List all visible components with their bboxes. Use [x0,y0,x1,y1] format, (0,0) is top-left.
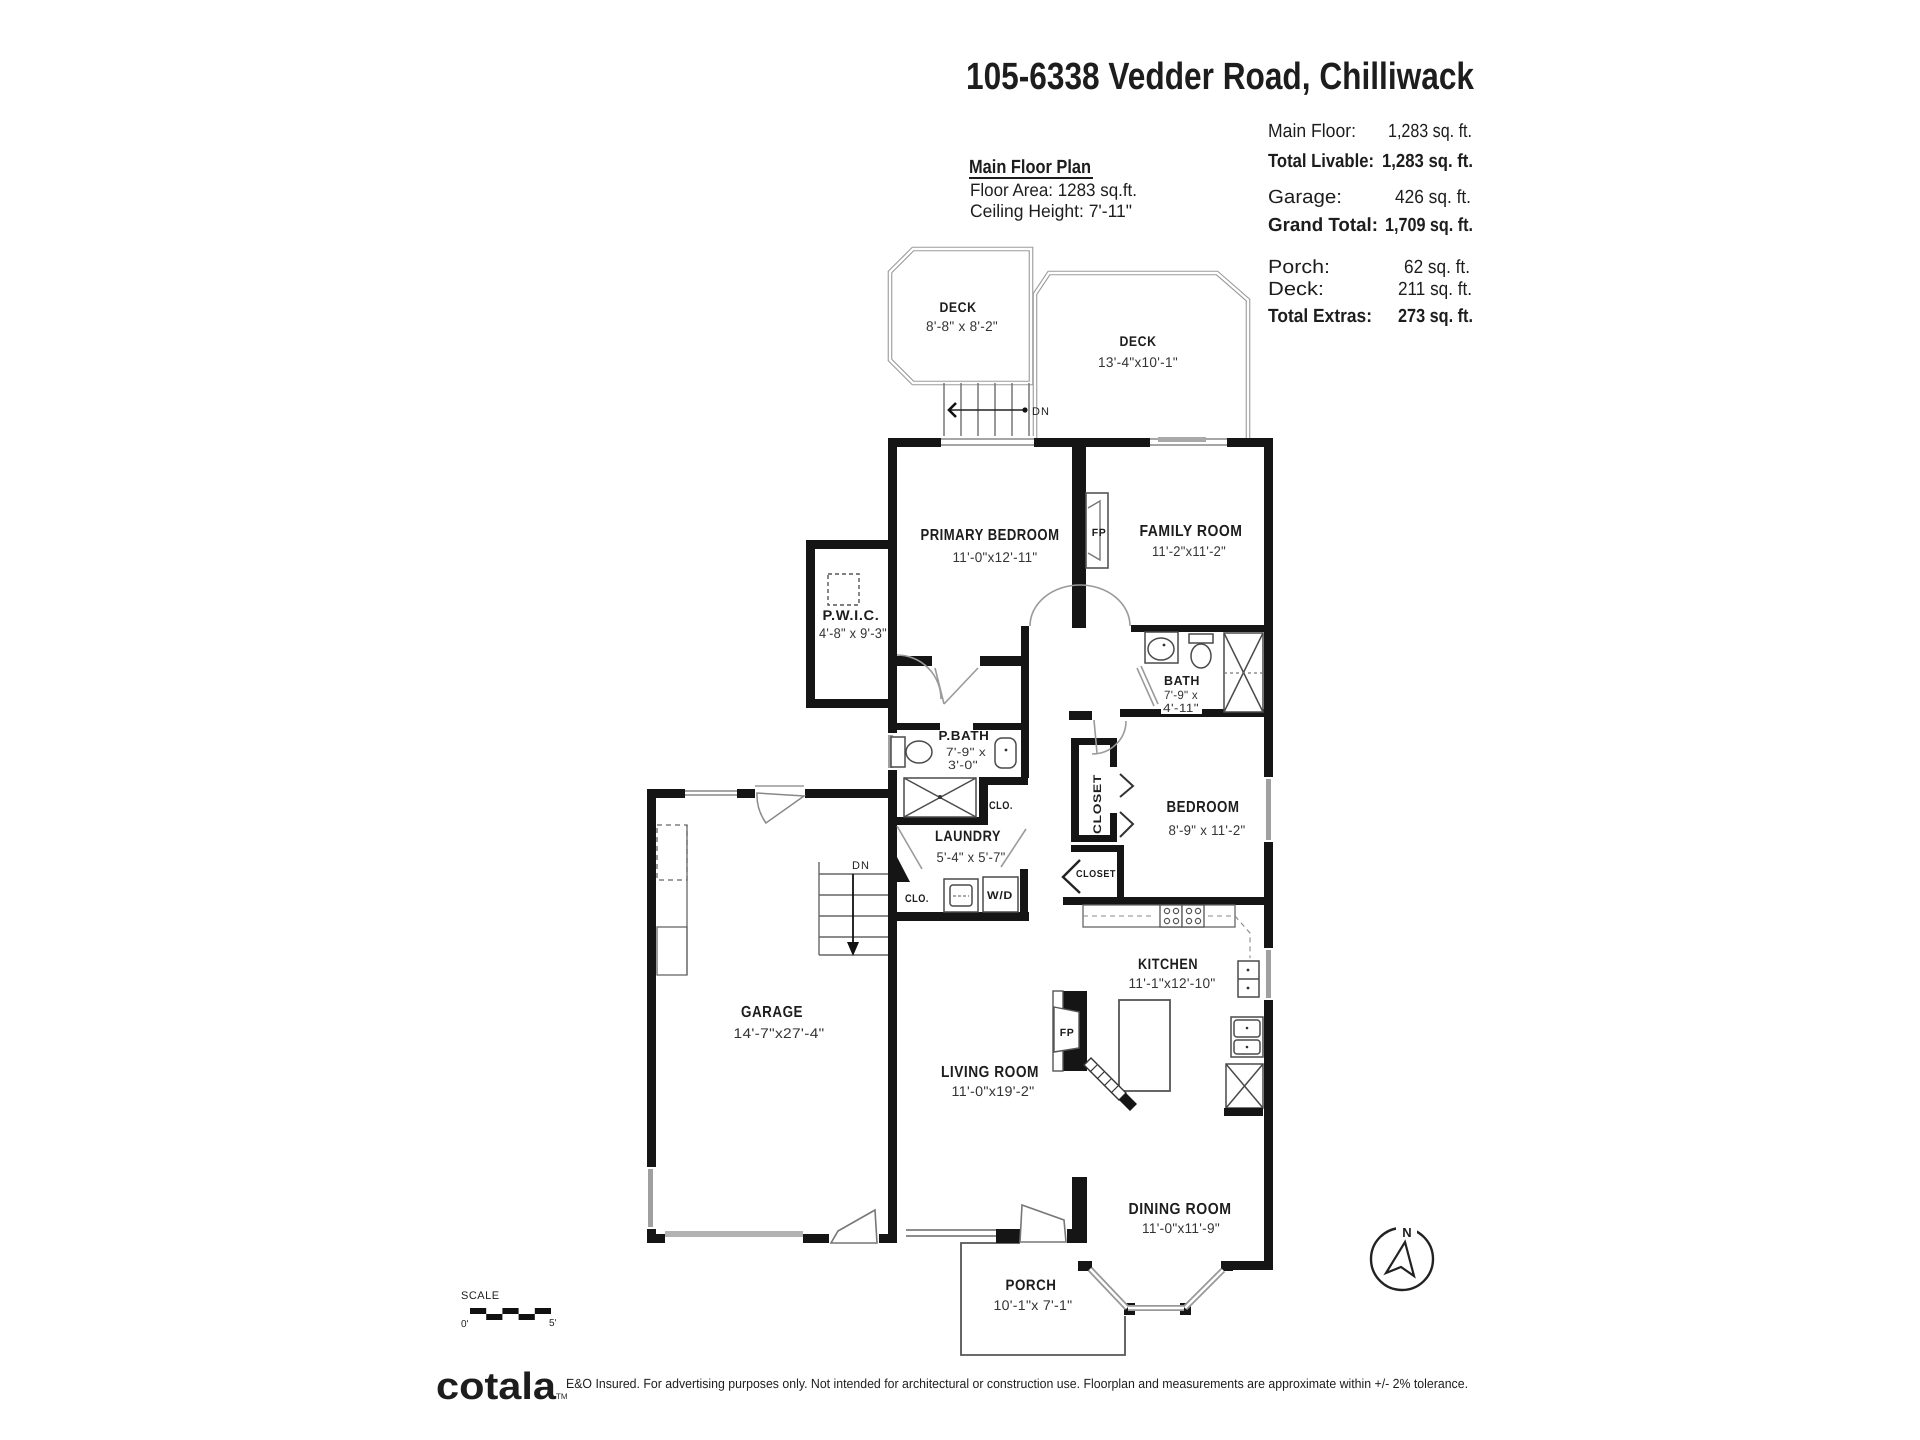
svg-text:8'-8" x 8'-2": 8'-8" x 8'-2" [926,318,998,334]
svg-text:Ceiling Height: 7'-11": Ceiling Height: 7'-11" [970,201,1132,221]
svg-text:W/D: W/D [987,890,1013,902]
svg-text:105-6338 Vedder Road, Chilliwa: 105-6338 Vedder Road, Chilliwack [966,56,1475,98]
svg-text:N: N [1402,1225,1411,1240]
svg-text:FAMILY ROOM: FAMILY ROOM [1140,523,1243,540]
svg-text:1,283 sq. ft.: 1,283 sq. ft. [1382,151,1473,172]
svg-text:SCALE: SCALE [461,1290,500,1302]
svg-text:DINING ROOM: DINING ROOM [1129,1201,1232,1218]
svg-text:CLOSET: CLOSET [1092,774,1104,834]
svg-text:PORCH: PORCH [1006,1277,1057,1294]
svg-text:E&O Insured. For advertising p: E&O Insured. For advertising purposes on… [566,1376,1468,1391]
svg-text:426 sq. ft.: 426 sq. ft. [1395,187,1471,208]
svg-text:62 sq. ft.: 62 sq. ft. [1404,257,1470,278]
svg-text:13'-4"x10'-1": 13'-4"x10'-1" [1098,354,1178,370]
svg-text:0': 0' [461,1319,469,1330]
svg-text:FP: FP [1060,1027,1075,1039]
svg-text:Grand Total:: Grand Total: [1268,215,1378,236]
svg-text:CLO.: CLO. [989,800,1013,812]
svg-text:11'-1"x12'-10": 11'-1"x12'-10" [1129,975,1216,991]
svg-text:BATH: BATH [1164,673,1200,688]
svg-text:11'-2"x11'-2": 11'-2"x11'-2" [1152,543,1226,559]
svg-text:DN: DN [852,860,870,872]
svg-text:KITCHEN: KITCHEN [1138,956,1198,973]
svg-text:211 sq. ft.: 211 sq. ft. [1398,279,1472,300]
svg-text:Deck:: Deck: [1268,279,1324,300]
svg-text:LAUNDRY: LAUNDRY [935,828,1001,845]
svg-text:273 sq. ft.: 273 sq. ft. [1398,306,1473,327]
svg-text:14'-7"x27'-4": 14'-7"x27'-4" [734,1025,825,1041]
svg-text:11'-0"x11'-9": 11'-0"x11'-9" [1142,1220,1220,1236]
svg-text:4'-8" x 9'-3": 4'-8" x 9'-3" [819,625,887,641]
svg-text:8'-9" x 11'-2": 8'-9" x 11'-2" [1169,822,1246,838]
svg-text:3'-0": 3'-0" [948,758,978,772]
svg-text:5'-4" x 5'-7": 5'-4" x 5'-7" [937,849,1006,865]
svg-text:Porch:: Porch: [1268,257,1330,278]
svg-text:5': 5' [549,1318,557,1329]
svg-text:7'-9" x: 7'-9" x [946,745,986,759]
svg-text:PRIMARY BEDROOM: PRIMARY BEDROOM [921,527,1060,544]
svg-text:P.W.I.C.: P.W.I.C. [823,607,880,623]
svg-text:7'-9" x: 7'-9" x [1164,688,1198,702]
svg-text:1,709 sq. ft.: 1,709 sq. ft. [1385,215,1473,236]
svg-text:FP: FP [1092,527,1107,539]
svg-text:DECK: DECK [940,299,977,315]
svg-text:Total Livable:: Total Livable: [1268,151,1374,172]
svg-text:TM: TM [556,1392,568,1401]
svg-text:BEDROOM: BEDROOM [1167,799,1240,816]
svg-text:cotala: cotala [436,1366,557,1408]
svg-text:LIVING ROOM: LIVING ROOM [941,1064,1039,1081]
svg-text:11'-0"x19'-2": 11'-0"x19'-2" [952,1083,1035,1099]
svg-text:CLO.: CLO. [905,893,929,905]
svg-text:P.BATH: P.BATH [939,728,990,743]
svg-text:1,283 sq. ft.: 1,283 sq. ft. [1388,121,1472,142]
svg-text:10'-1"x 7'-1": 10'-1"x 7'-1" [994,1297,1073,1313]
svg-text:Total Extras:: Total Extras: [1268,306,1372,327]
svg-text:Main Floor:: Main Floor: [1268,121,1356,142]
svg-text:11'-0"x12'-11": 11'-0"x12'-11" [953,549,1038,565]
svg-text:GARAGE: GARAGE [741,1004,803,1021]
svg-text:Garage:: Garage: [1268,187,1342,208]
svg-text:DN: DN [1032,406,1050,418]
svg-text:Main Floor Plan: Main Floor Plan [969,157,1091,178]
svg-text:DECK: DECK [1120,333,1157,349]
svg-text:Floor Area: 1283 sq.ft.: Floor Area: 1283 sq.ft. [970,180,1137,200]
svg-text:CLOSET: CLOSET [1076,869,1116,880]
svg-text:4'-11": 4'-11" [1163,701,1199,715]
